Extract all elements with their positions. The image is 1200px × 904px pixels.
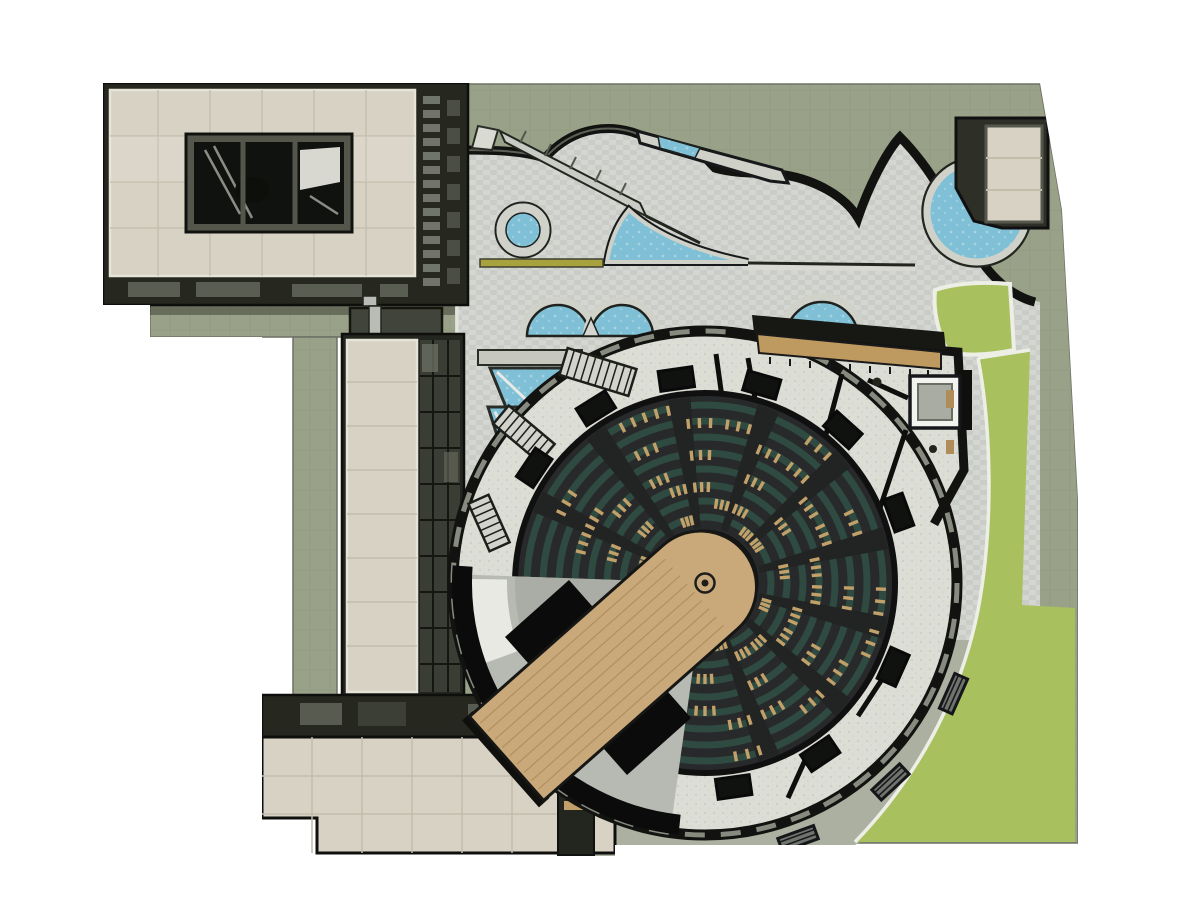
floor-drain bbox=[873, 378, 882, 387]
round-auditorium bbox=[453, 315, 972, 852]
sw-window bbox=[300, 703, 342, 725]
west-tower-building bbox=[342, 296, 464, 700]
glass-reflection bbox=[422, 344, 438, 372]
entry-tower-roof bbox=[986, 126, 1042, 222]
pool-edge-dark bbox=[748, 263, 915, 265]
tower-vent bbox=[363, 296, 377, 306]
site-plan-rendering bbox=[0, 0, 1200, 904]
yellow-bench bbox=[480, 259, 603, 267]
stage-center-dot bbox=[702, 580, 709, 587]
gallery-skylight bbox=[186, 134, 352, 232]
pool-edge-light bbox=[748, 267, 915, 268]
northwest-gallery-building bbox=[103, 83, 468, 305]
ground-strip-west bbox=[293, 337, 337, 697]
lawn-upper-patch bbox=[935, 283, 1014, 355]
floor-drain bbox=[929, 445, 937, 453]
interior-plant bbox=[235, 177, 269, 203]
viewport: architectural-site-plan-rendering bbox=[0, 0, 1200, 904]
tower-roof bbox=[347, 340, 417, 692]
sw-window bbox=[358, 702, 406, 726]
glass-reflection bbox=[444, 452, 458, 482]
